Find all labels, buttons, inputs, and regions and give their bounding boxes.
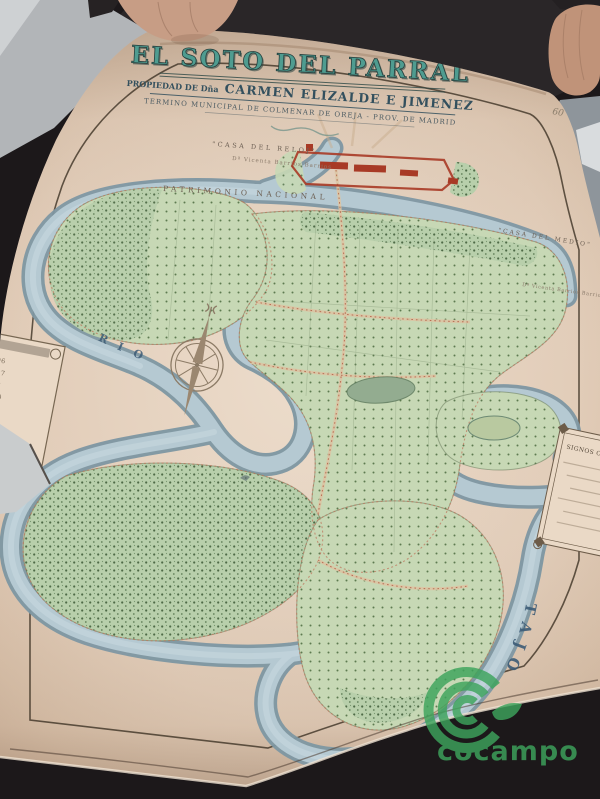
photo-of-antique-map: " EL SOTO DEL PARRAL " " EL SOTO DEL PAR… [0, 0, 600, 799]
building [354, 164, 386, 172]
watermark-text: cocampo [437, 736, 579, 767]
hand-shadow [171, 34, 219, 46]
right-hand [549, 5, 600, 96]
building [400, 170, 418, 177]
pond-right [468, 416, 520, 440]
pencil-note: 60 [551, 107, 564, 119]
